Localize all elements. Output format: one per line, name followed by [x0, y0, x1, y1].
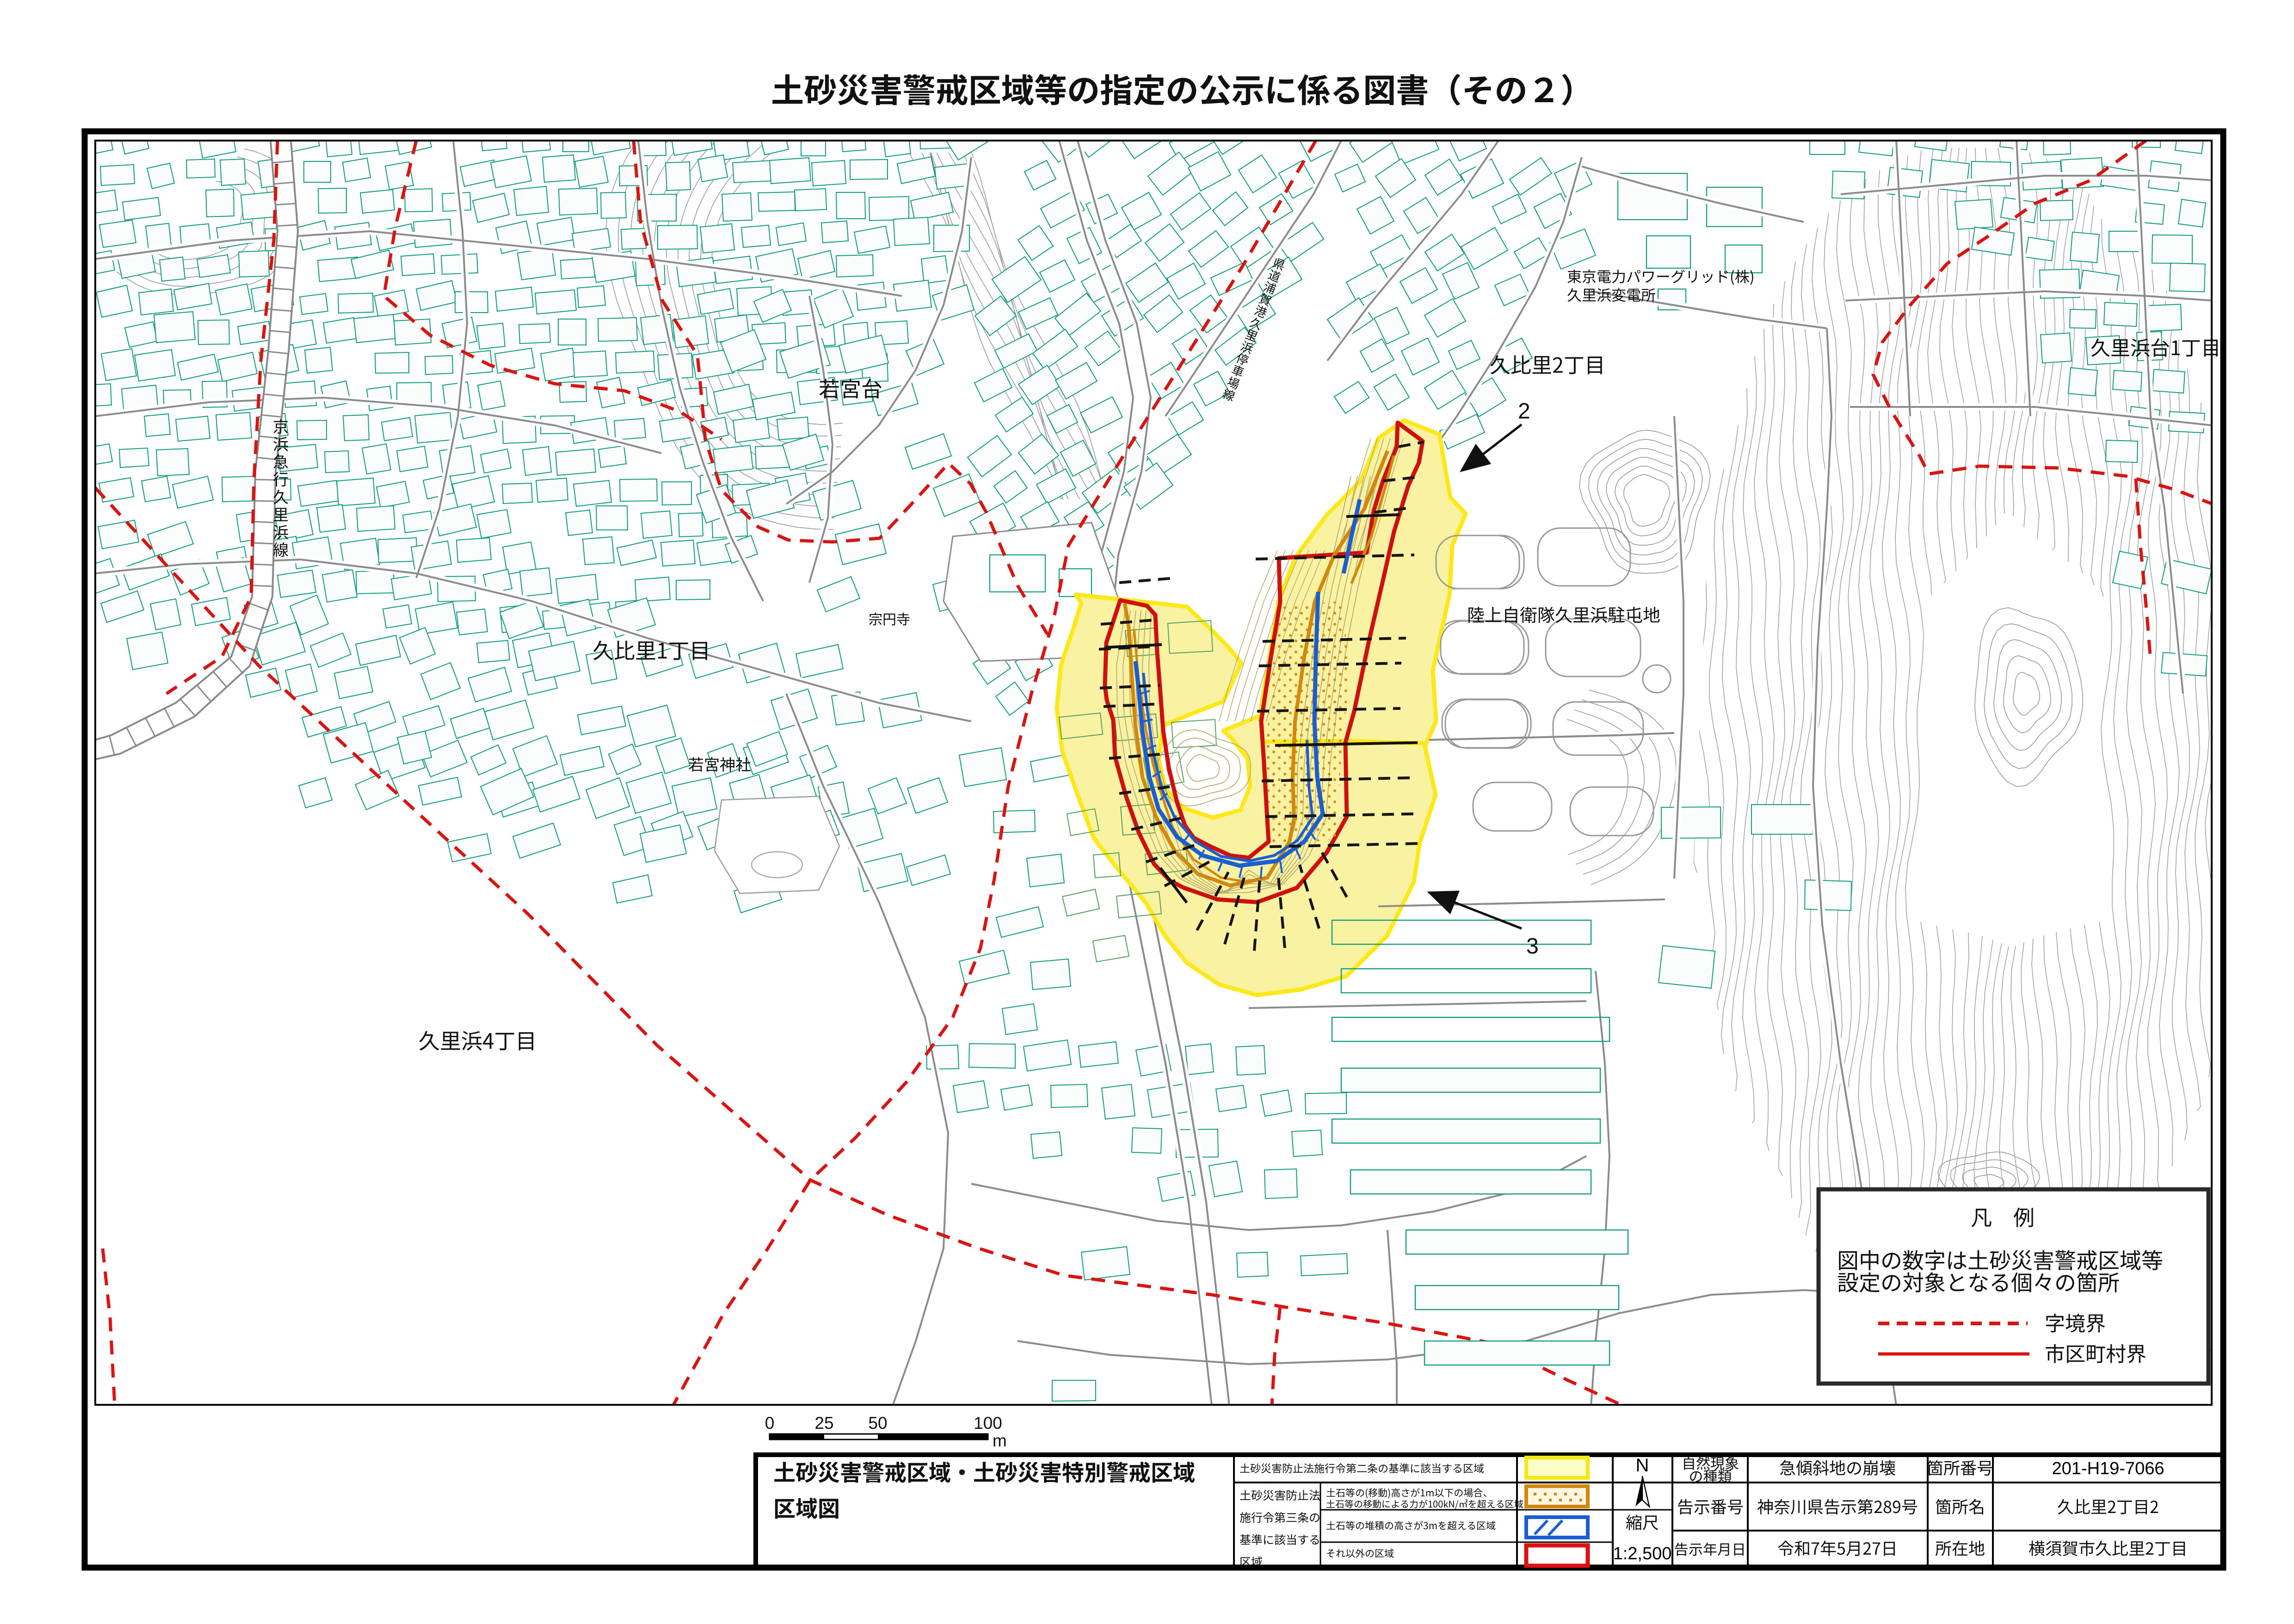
svg-text:50: 50: [868, 1414, 887, 1433]
svg-text:m: m: [993, 1431, 1007, 1450]
svg-text:201-H19-7066: 201-H19-7066: [2052, 1459, 2164, 1478]
svg-text:N: N: [1636, 1455, 1649, 1476]
svg-text:25: 25: [814, 1414, 833, 1433]
svg-text:3: 3: [1526, 934, 1539, 959]
svg-text:0: 0: [765, 1414, 775, 1433]
svg-text:2: 2: [1518, 399, 1530, 424]
svg-text:100: 100: [974, 1414, 1002, 1433]
svg-text:1:2,500: 1:2,500: [1613, 1544, 1672, 1563]
